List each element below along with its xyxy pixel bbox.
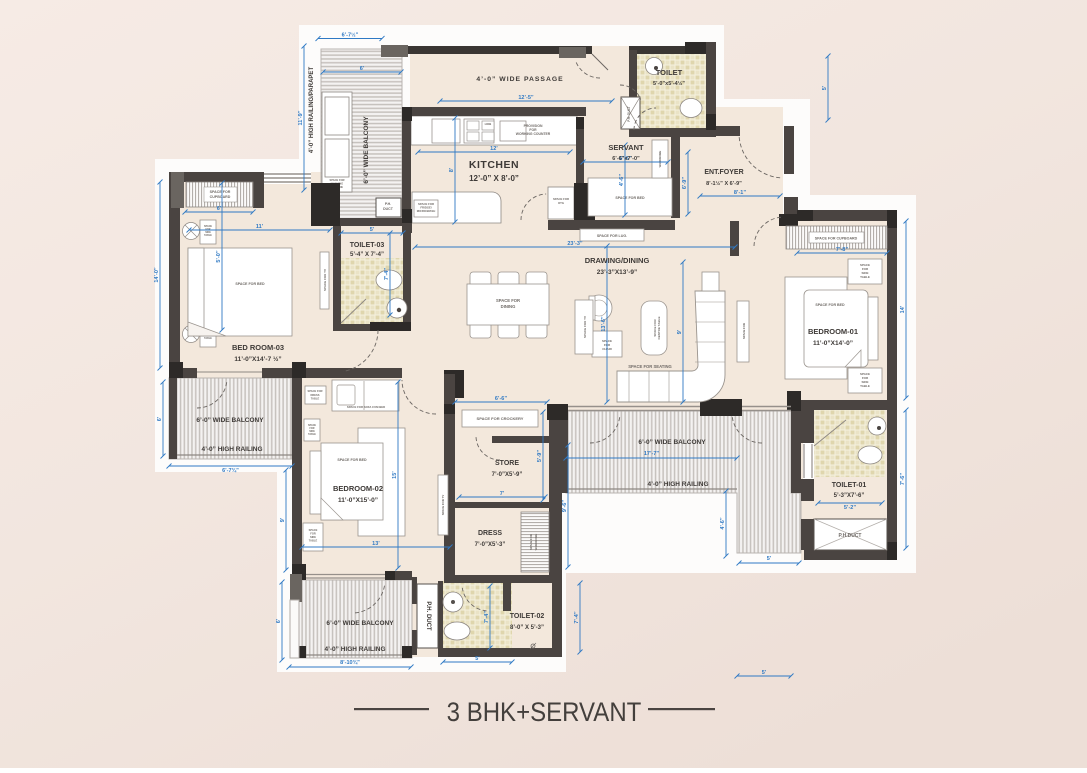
svg-text:11’-0”X14’-0”: 11’-0”X14’-0” [813, 340, 853, 347]
svg-text:HOB: HOB [485, 122, 493, 126]
svg-text:BED ROOM-03: BED ROOM-03 [232, 343, 284, 352]
svg-text:6’-0” WIDE BALCONY: 6’-0” WIDE BALCONY [638, 439, 706, 446]
svg-text:TABLE: TABLE [204, 337, 212, 340]
svg-text:P.H. DUCT: P.H. DUCT [627, 106, 631, 122]
svg-text:4’-6”: 4’-6” [619, 174, 625, 186]
svg-text:6’-0” WIDE BALCONY: 6’-0” WIDE BALCONY [326, 620, 394, 627]
svg-text:KITCHEN: KITCHEN [469, 159, 519, 171]
svg-text:13’: 13’ [372, 541, 380, 547]
svg-text:5’: 5’ [822, 85, 828, 90]
svg-text:SPACE FOR BED: SPACE FOR BED [337, 458, 367, 462]
svg-text:17’-7”: 17’-7” [644, 451, 660, 457]
svg-text:DRAWING/DINING: DRAWING/DINING [585, 256, 650, 265]
svg-text:9’-6”: 9’-6” [562, 500, 568, 512]
svg-text:12’-5”: 12’-5” [518, 95, 534, 101]
svg-text:SPACE FOR TV: SPACE FOR TV [323, 269, 327, 291]
svg-text:SIDE: SIDE [310, 535, 316, 539]
svg-text:4’-0” WIDE PASSAGE: 4’-0” WIDE PASSAGE [476, 76, 563, 83]
svg-text:SPACE FOR CROCKERY: SPACE FOR CROCKERY [477, 416, 524, 421]
svg-text:5’: 5’ [762, 670, 767, 676]
svg-text:11’-9”: 11’-9” [298, 110, 304, 125]
svg-text:WARDROBE: WARDROBE [658, 151, 662, 168]
svg-text:P.H.DUCT: P.H.DUCT [839, 533, 862, 539]
svg-text:SPACE FOR: SPACE FOR [742, 323, 746, 339]
svg-text:STORE: STORE [495, 460, 519, 467]
svg-text:6’: 6’ [157, 416, 163, 421]
svg-text:14’-0”: 14’-0” [154, 267, 160, 283]
svg-text:11’-0”X15’-0”: 11’-0”X15’-0” [338, 497, 378, 504]
svg-text:SPACE FOR LUG.: SPACE FOR LUG. [597, 234, 627, 238]
svg-text:FOR: FOR [310, 532, 316, 536]
svg-text:WORKING COUNTER: WORKING COUNTER [516, 132, 551, 136]
svg-text:SPACE FOR CUPBOARD: SPACE FOR CUPBOARD [815, 237, 858, 241]
svg-text:P.H. DUCT: P.H. DUCT [425, 601, 431, 631]
svg-text:8’: 8’ [449, 167, 455, 172]
svg-text:8’-10¾”: 8’-10¾” [340, 659, 360, 666]
svg-text:6’: 6’ [217, 206, 222, 212]
svg-text:6’-0” WIDE BALCONY: 6’-0” WIDE BALCONY [363, 116, 370, 184]
svg-text:14’: 14’ [900, 305, 906, 313]
svg-text:SPACE FOR TV: SPACE FOR TV [441, 495, 445, 516]
svg-text:SPACE FOR: SPACE FOR [330, 178, 345, 182]
svg-text:7’-0”X5’-9”: 7’-0”X5’-9” [492, 472, 523, 478]
svg-text:7’-4”: 7’-4” [484, 611, 490, 623]
svg-text:7’-8”: 7’-8” [836, 247, 848, 253]
svg-text:BEDROOM-02: BEDROOM-02 [333, 484, 383, 493]
svg-text:5’-2”: 5’-2” [844, 505, 856, 511]
svg-text:DUCT: DUCT [383, 207, 394, 211]
svg-text:6’-9”: 6’-9” [682, 177, 688, 189]
svg-text:4’-0” HIGH RAILING: 4’-0” HIGH RAILING [647, 481, 708, 488]
svg-text:TOILET: TOILET [656, 68, 683, 77]
svg-text:P.H.: P.H. [385, 202, 391, 206]
svg-text:7’-4”: 7’-4” [384, 268, 390, 280]
svg-text:6’: 6’ [276, 618, 282, 623]
svg-text:SPACE FOR: SPACE FOR [308, 389, 323, 393]
svg-text:SPACE FOR TV: SPACE FOR TV [583, 316, 587, 338]
svg-text:8’-1½” X 6’-9”: 8’-1½” X 6’-9” [706, 180, 742, 187]
svg-text:TABLE: TABLE [311, 397, 320, 401]
svg-text:4’-0” HIGH RAILING: 4’-0” HIGH RAILING [324, 646, 385, 653]
svg-text:TABLE: TABLE [860, 275, 870, 279]
svg-text:TABLE: TABLE [308, 433, 316, 436]
svg-text:7’-0”X5’-3”: 7’-0”X5’-3” [475, 542, 506, 548]
svg-text:6’-6”x7’-0”: 6’-6”x7’-0” [612, 156, 640, 162]
svg-text:5’: 5’ [767, 556, 772, 562]
svg-text:15’: 15’ [392, 471, 398, 479]
svg-text:8’-0” X 5’-3”: 8’-0” X 5’-3” [510, 625, 544, 631]
svg-text:CENTRE TABLE: CENTRE TABLE [657, 317, 661, 340]
svg-text:CUPBOARD: CUPBOARD [210, 195, 231, 199]
svg-text:3 BHK+SERVANT: 3 BHK+SERVANT [447, 698, 642, 728]
svg-text:SPACE FOR BED: SPACE FOR BED [615, 196, 645, 200]
svg-text:12’-0” X 8’-0”: 12’-0” X 8’-0” [469, 174, 519, 183]
svg-text:WARDROBE: WARDROBE [534, 534, 538, 551]
svg-text:SPACE FOR: SPACE FOR [529, 534, 533, 550]
svg-text:5’-9”: 5’-9” [537, 450, 543, 462]
svg-text:TABLE: TABLE [860, 384, 870, 388]
svg-text:TOILET-01: TOILET-01 [832, 482, 867, 489]
svg-text:6’-7¾”: 6’-7¾” [222, 467, 239, 474]
svg-text:6’-0” WIDE BALCONY: 6’-0” WIDE BALCONY [196, 417, 264, 424]
svg-text:7’-6”: 7’-6” [900, 473, 906, 485]
svg-text:5’-3”X7’-6”: 5’-3”X7’-6” [834, 493, 865, 499]
svg-text:5’-0”x5’-4½”: 5’-0”x5’-4½” [653, 80, 685, 87]
svg-text:SPACE: SPACE [309, 528, 318, 532]
svg-text:DRESS: DRESS [311, 393, 320, 397]
svg-text:TABLE: TABLE [309, 539, 318, 543]
svg-text:4’-6”: 4’-6” [720, 517, 726, 529]
svg-text:5’-4” X 7’-4”: 5’-4” X 7’-4” [350, 252, 384, 258]
svg-text:SPACE FOR SEATING: SPACE FOR SEATING [628, 364, 672, 369]
svg-text:9’: 9’ [280, 517, 286, 522]
svg-text:7’: 7’ [500, 491, 505, 497]
svg-text:23’-3”X13’-9”: 23’-3”X13’-9” [597, 269, 637, 276]
svg-text:TABLE: TABLE [204, 234, 212, 237]
svg-text:DRESS: DRESS [478, 530, 502, 537]
svg-text:7’-4”: 7’-4” [574, 611, 580, 623]
svg-text:8’-1”: 8’-1” [734, 190, 746, 196]
svg-text:6’-6”: 6’-6” [495, 396, 507, 402]
svg-text:TOILET-02: TOILET-02 [510, 613, 545, 620]
svg-text:5’-0”: 5’-0” [216, 250, 222, 262]
svg-text:4’-0” HIGH RAILING/PARAPET: 4’-0” HIGH RAILING/PARAPET [309, 67, 315, 154]
svg-text:OTG: OTG [558, 201, 564, 205]
svg-text:11’-0”X14’-7 ½”: 11’-0”X14’-7 ½” [234, 355, 281, 363]
svg-text:9’: 9’ [677, 329, 683, 334]
svg-text:5’: 5’ [370, 227, 375, 233]
svg-text:11’: 11’ [256, 224, 264, 230]
svg-text:4’-0” HIGH RAILING: 4’-0” HIGH RAILING [201, 446, 262, 453]
svg-text:ENT.FOYER: ENT.FOYER [704, 169, 743, 176]
svg-text:13’-6”: 13’-6” [601, 316, 607, 332]
svg-text:SPACE FOR BED: SPACE FOR BED [815, 303, 845, 307]
svg-text:SPACE FOR: SPACE FOR [496, 298, 520, 303]
svg-text:TOILET-03: TOILET-03 [350, 242, 385, 249]
svg-text:SPACE FOR SOFA CUM BED: SPACE FOR SOFA CUM BED [347, 405, 385, 409]
svg-text:MICRO/WASH: MICRO/WASH [417, 209, 436, 213]
svg-text:5’: 5’ [475, 656, 480, 662]
svg-text:SERVANT: SERVANT [608, 143, 644, 152]
svg-text:6’-7½”: 6’-7½” [342, 32, 359, 39]
svg-text:SPACE FOR: SPACE FOR [210, 190, 231, 194]
svg-text:6’: 6’ [360, 66, 365, 72]
svg-text:12’: 12’ [490, 146, 498, 152]
svg-text:DINING: DINING [501, 304, 516, 309]
svg-text:23’-3”: 23’-3” [567, 241, 583, 247]
svg-text:BEDROOM-01: BEDROOM-01 [808, 327, 858, 336]
svg-text:SPACE FOR BED: SPACE FOR BED [235, 282, 265, 286]
